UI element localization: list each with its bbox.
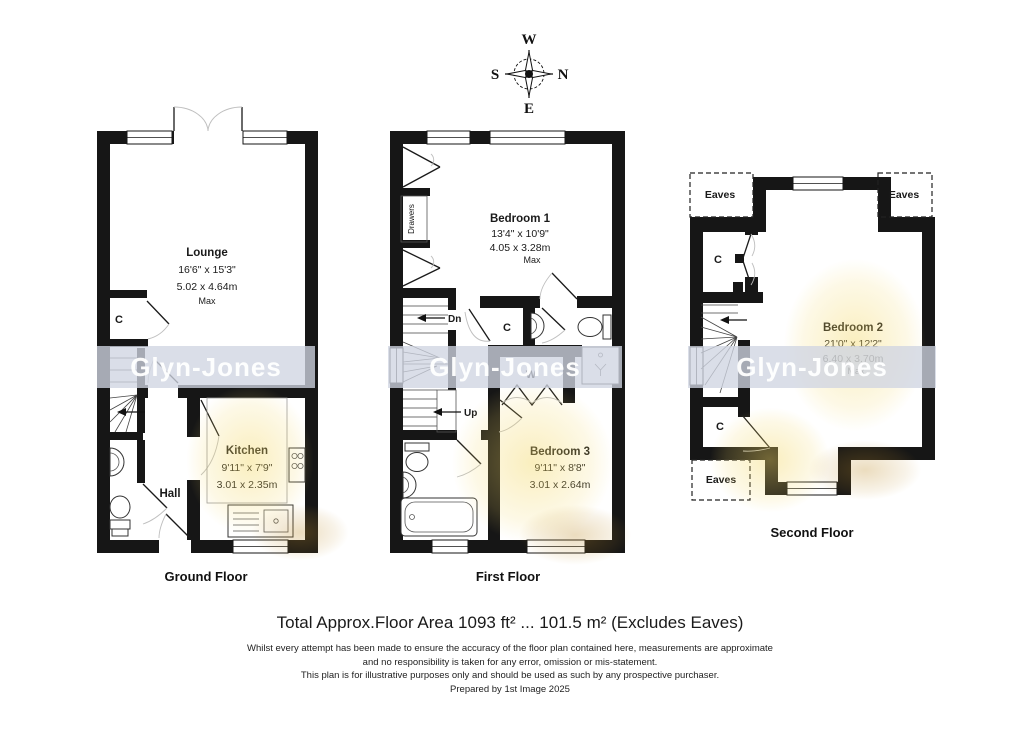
disclaimer-text: Whilst every attempt has been made to en… bbox=[0, 642, 1020, 696]
ensuite-basin bbox=[531, 313, 544, 339]
ground-floor-walls bbox=[97, 131, 318, 553]
bedroom3-metric: 3.01 x 2.64m bbox=[530, 479, 591, 491]
compass-star bbox=[507, 52, 551, 96]
hall-label: Hall bbox=[159, 488, 180, 500]
down-arrow-label: Dn bbox=[448, 314, 461, 325]
lounge-label: Lounge bbox=[186, 247, 228, 259]
bathroom-fixtures bbox=[401, 443, 477, 536]
lounge-metric: 5.02 x 4.64m bbox=[177, 281, 238, 293]
ff-cupboard-label: C bbox=[503, 322, 511, 334]
gf-cupboard-label: C bbox=[115, 314, 123, 326]
ground-floor-doors bbox=[143, 301, 219, 538]
bedroom3-label: Bedroom 3 bbox=[530, 446, 590, 458]
compass-letter-right: N bbox=[558, 67, 569, 83]
kitchen-label: Kitchen bbox=[226, 445, 268, 457]
bedroom2-label: Bedroom 2 bbox=[823, 322, 883, 334]
bedroom1-label: Bedroom 1 bbox=[490, 213, 551, 225]
bedroom2-metric: 6.40 x 3.70m bbox=[823, 353, 884, 365]
ensuite-toilet bbox=[578, 318, 602, 337]
french-doors bbox=[174, 107, 242, 131]
first-floor-stairs: Dn Up bbox=[403, 306, 477, 432]
bathroom-basin bbox=[403, 472, 416, 498]
second-floor-walls bbox=[690, 177, 935, 495]
disclaimer-line-3: This plan is for illustrative purposes o… bbox=[0, 669, 1020, 683]
disclaimer-line-1: Whilst every attempt has been made to en… bbox=[0, 642, 1020, 656]
eaves-top-right-label: Eaves bbox=[889, 189, 920, 201]
bathtub bbox=[401, 498, 477, 536]
compass-letter-top: W bbox=[522, 32, 537, 48]
lounge-max: Max bbox=[198, 296, 216, 306]
first-floor-plan: Drawers Dn Up bbox=[385, 100, 630, 560]
second-floor-caption: Second Floor bbox=[702, 525, 922, 540]
wc-toilet bbox=[110, 496, 130, 518]
sf-cupboard-lower-label: C bbox=[716, 421, 724, 433]
lounge-imperial: 16'6" x 15'3" bbox=[178, 264, 236, 276]
total-area-text: Total Approx.Floor Area 1093 ft² ... 101… bbox=[0, 613, 1020, 633]
second-floor-plan: Eaves Eaves Eaves C C Bedroom 2 21'0" x … bbox=[680, 165, 940, 510]
drawers-label: Drawers bbox=[407, 204, 416, 234]
wardrobes-and-drawers: Drawers bbox=[401, 147, 440, 286]
compass-letter-left: S bbox=[491, 67, 499, 83]
eaves-bottom-left-label: Eaves bbox=[706, 474, 737, 486]
eaves-top-left-label: Eaves bbox=[705, 189, 736, 201]
bedroom1-max: Max bbox=[523, 255, 541, 265]
wc-basin bbox=[110, 448, 124, 476]
sf-cupboard-upper-label: C bbox=[714, 254, 722, 266]
bedroom2-imperial: 21'0" x 12'2" bbox=[824, 338, 882, 350]
bathroom-toilet bbox=[406, 453, 428, 472]
bedroom2-max: Max bbox=[847, 366, 865, 376]
up-arrow-label: Up bbox=[464, 408, 477, 419]
bedroom1-metric: 4.05 x 3.28m bbox=[490, 242, 551, 254]
bedroom3-imperial: 9'11" x 8'8" bbox=[535, 462, 586, 474]
shower-cubicle bbox=[582, 347, 619, 384]
kitchen-imperial: 9'11" x 7'9" bbox=[222, 462, 273, 474]
first-floor-caption: First Floor bbox=[398, 569, 618, 584]
kitchen-metric: 3.01 x 2.35m bbox=[217, 479, 278, 491]
wardrobe-w-doors bbox=[502, 385, 562, 405]
ground-floor-plan: Lounge 16'6" x 15'3" 5.02 x 4.64m Max Ki… bbox=[93, 100, 323, 560]
prepared-by-text: Prepared by 1st Image 2025 bbox=[0, 683, 1020, 697]
floorplan-page: W N E S bbox=[0, 0, 1020, 742]
disclaimer-line-2: and no responsibility is taken for any e… bbox=[0, 656, 1020, 670]
wardrobe-label: W bbox=[526, 369, 537, 381]
ground-floor-caption: Ground Floor bbox=[96, 569, 316, 584]
bedroom1-imperial: 13'4" x 10'9" bbox=[491, 228, 549, 240]
wc-fixtures bbox=[110, 448, 130, 536]
